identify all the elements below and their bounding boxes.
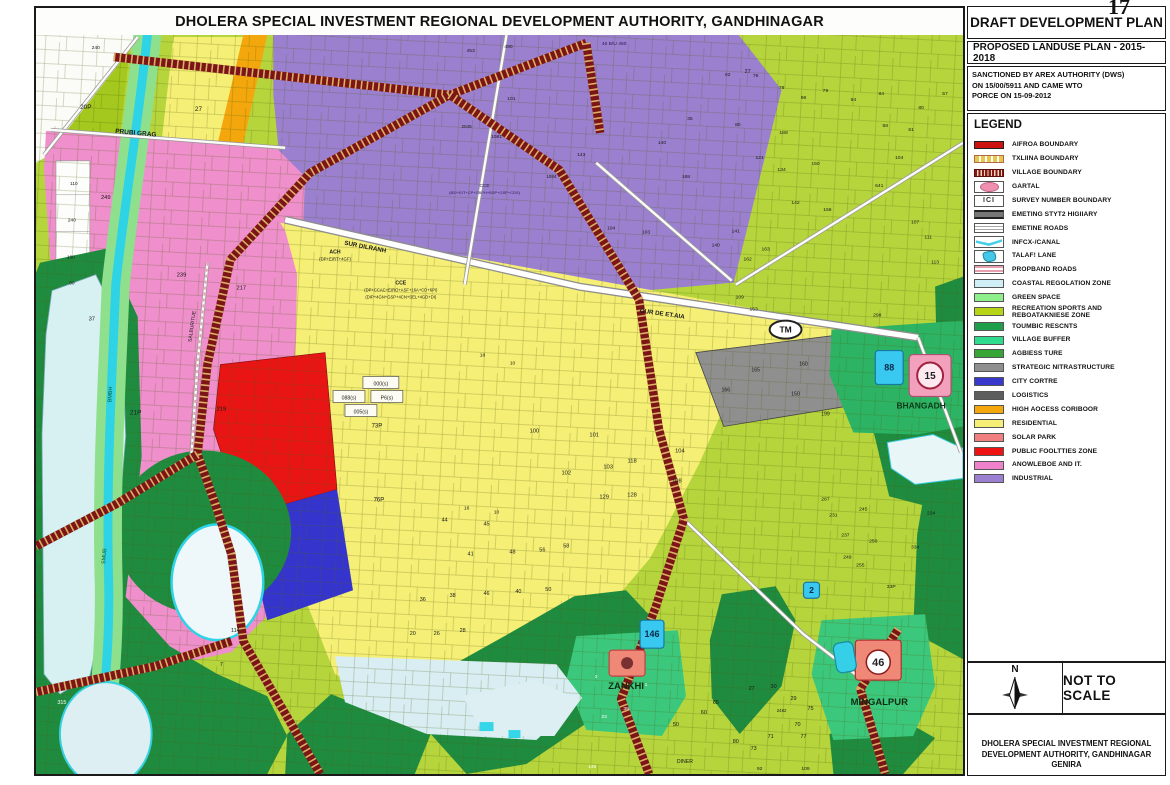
map-label: 50 (673, 722, 679, 728)
map-label: 26 (434, 631, 440, 637)
map-label: 143 (577, 152, 586, 158)
map-label: 00 (69, 281, 75, 287)
north-arrow-icon (998, 675, 1032, 711)
map-label: 315 (57, 700, 66, 706)
map-label: 75 (807, 706, 813, 712)
map-label: 73 (751, 746, 757, 752)
map-label: 245 (859, 506, 868, 512)
canal-bit (508, 730, 520, 738)
map-label: 114 (231, 628, 240, 634)
map-label: ACH (329, 250, 340, 256)
map-label: 162 (744, 257, 753, 263)
map-label: 80 (918, 105, 924, 111)
map-label: 166 (721, 388, 730, 394)
badge-88: 88 (875, 351, 903, 385)
map-label: 84 (879, 91, 885, 97)
map-label: 27 (195, 106, 203, 113)
map-label: 28 (460, 628, 466, 634)
map-label: 61 (908, 127, 914, 133)
map-label: (DP+CCAC+EIRO+ASF+16A+CD+6PI) (364, 288, 438, 293)
credit-line: DHOLERA SPECIAL INVESTMENT REGIONAL (968, 739, 1165, 750)
map-label: 40 (515, 589, 521, 595)
map-label: 249 (101, 195, 111, 201)
map-label: 2 (595, 674, 598, 680)
map-label: CCE (480, 183, 490, 189)
legend-swatch (974, 141, 1004, 149)
map-label: 287 (821, 496, 830, 502)
map-label: 57 (942, 91, 948, 97)
map-label: 249 (843, 554, 852, 560)
credit-line: DEVELOPMENT AUTHORITY, GANDHINAGAR (968, 750, 1165, 761)
map-label: 76 (753, 73, 759, 79)
map-label: 140 (658, 140, 667, 146)
map-label: 000(s) (374, 382, 389, 388)
map-label: 150 (811, 161, 820, 167)
map-label: (DP+EIRT+4GF) (319, 257, 351, 262)
map-label: 29 (791, 696, 797, 702)
map-label: 088(s) (342, 396, 357, 402)
map-label: 30 (771, 684, 777, 690)
canal-bit (480, 722, 494, 731)
legend-label: HIGH AOCESS CORIBOOR (1012, 406, 1098, 413)
legend-item: EMETINE ROADS (974, 221, 1165, 235)
legend-item: TXLIINA BOUNDARY (974, 152, 1165, 166)
badge-15: 15 (909, 355, 951, 397)
map-label: 45 (483, 521, 489, 527)
legend-item: HIGH AOCESS CORIBOOR (974, 403, 1165, 417)
map-label: 16 (464, 505, 470, 511)
map-label: 163 (761, 247, 770, 253)
map-label: 005(s) (354, 409, 369, 415)
map-label: 60 (701, 710, 707, 716)
legend-label: INDUSTRIAL (1012, 475, 1053, 482)
legend-label: VILLAGE BOUNDARY (1012, 169, 1082, 176)
map-label: 334 (911, 544, 920, 550)
legend-item: TALAF! LANE (974, 249, 1165, 263)
map-label: DINER (677, 759, 693, 765)
map-label: 2045 (462, 124, 473, 129)
map-label: 18 (480, 353, 486, 359)
map-label: BMBH (107, 386, 114, 402)
svg-text:46: 46 (872, 657, 884, 669)
legend: LEGEND AIFROA BOUNDARYTXLIINA BOUNDARYVI… (967, 113, 1166, 662)
map-label: 160 (799, 362, 808, 368)
legend-label: INFCX-/CANAL (1012, 239, 1060, 246)
map-label: 10 (494, 509, 500, 515)
legend-label: STRATEGIC NITRASTRUCTURE (1012, 364, 1115, 371)
map-label: 96 (801, 95, 807, 101)
map-label: 298 (873, 313, 882, 319)
map-label: CCE (395, 281, 406, 287)
map-label: 250 (869, 538, 878, 544)
map-label: 453 (466, 48, 475, 54)
map-label: 20 (410, 631, 416, 637)
map-label: 39 (623, 706, 629, 712)
badge-46: 46 (855, 640, 901, 680)
map-label: 103 (603, 464, 613, 470)
credit-line: GENIRA (968, 760, 1165, 771)
map-label: 44 (442, 517, 448, 523)
map-label: 20P (80, 104, 92, 111)
map-label: 23 (601, 714, 607, 720)
map-label: 58 (563, 543, 569, 549)
map-label: 70 (794, 722, 800, 728)
map-label: 33P (887, 584, 897, 590)
legend-item: CITY CORTRE (974, 375, 1165, 389)
map-label: 129 (599, 494, 609, 500)
map-label: 77 (800, 734, 806, 740)
map-label: 234 (927, 510, 936, 516)
sanction-line: PORCE ON 15-09-2012 (972, 91, 1161, 102)
map-label: 38 (450, 593, 456, 599)
legend-label: CITY CORTRE (1012, 378, 1058, 385)
legend-swatch (974, 293, 1004, 302)
map-label: 166 (823, 207, 832, 213)
map-label: 101 (589, 432, 599, 438)
legend-item: RESIDENTIAL (974, 416, 1165, 430)
scale-box: N NOT TO SCALE (967, 662, 1166, 714)
map-label: 80 (733, 739, 739, 745)
map-label: 35 (687, 116, 693, 122)
legend-item: AGBIESS TURE (974, 347, 1165, 361)
map-label: 239 (177, 273, 187, 279)
legend-item: RECREATION SPORTS AND REBOATAKNIESE ZONE (974, 305, 1165, 320)
north-label: N (1011, 665, 1018, 675)
legend-swatch (974, 307, 1004, 316)
map-frame: DHOLERA SPECIAL INVESTMENT REGIONAL DEVE… (34, 6, 965, 776)
map-label: 240 (68, 218, 76, 224)
legend-swatch (974, 265, 1004, 274)
map-label: 62 (725, 72, 731, 78)
map-label: 108 (672, 478, 682, 484)
map-label: 10 (510, 361, 516, 367)
map-label: 153 (750, 307, 759, 313)
map-label: 78 (779, 85, 785, 91)
map-label: 92 (757, 766, 763, 772)
map-label: 110 (70, 181, 78, 187)
legend-item: GREEN SPACE (974, 291, 1165, 305)
map-label: ZANKHI (608, 681, 644, 692)
map-label: 141 (732, 229, 741, 235)
map-label: 231 (829, 512, 838, 518)
map-label: 188 (779, 130, 788, 136)
legend-item: TOUMBIC RESCNTS (974, 319, 1165, 333)
map-label: 58 (882, 123, 888, 129)
map-title: DHOLERA SPECIAL INVESTMENT REGIONAL DEVE… (36, 8, 963, 37)
map-label: 36 (420, 597, 426, 603)
map-label: 2482 (777, 708, 787, 713)
map-label: 113 (931, 260, 939, 266)
legend-swatch: ICI (974, 195, 1004, 207)
map-label: 27 (745, 69, 751, 75)
legend-label: PROPBAND ROADS (1012, 266, 1077, 273)
legend-swatch (974, 279, 1004, 288)
legend-item: AIFROA BOUNDARY (974, 138, 1165, 152)
map-label: 46 B/U 460 (602, 41, 627, 47)
map-label: 219 (217, 406, 227, 412)
credit: DHOLERA SPECIAL INVESTMENT REGIONAL DEVE… (967, 714, 1166, 776)
page-number: 17 (1108, 0, 1130, 20)
legend-label: TOUMBIC RESCNTS (1012, 323, 1078, 330)
plan-subtitle: PROPOSED LANDUSE PLAN - 2015-2018 (967, 41, 1166, 64)
legend-item: COASTAL REGOLATION ZONE (974, 277, 1165, 291)
map-label: 165 (751, 368, 760, 374)
map-label: 1 (645, 682, 648, 688)
map-label: 100 (530, 428, 540, 434)
sanction-line: ON 15/00/5911 AND CAME WTO (972, 81, 1161, 92)
legend-swatch (974, 461, 1004, 470)
legend-item: VILLAGE BUFFER (974, 333, 1165, 347)
legend-swatch (974, 405, 1004, 414)
svg-text:2: 2 (809, 585, 814, 595)
legend-label: COASTAL REGOLATION ZONE (1012, 280, 1111, 287)
legend-label: TALAF! LANE (1012, 252, 1056, 259)
plan-title: DRAFT DEVELOPMENT PLAN (967, 6, 1166, 39)
legend-swatch (974, 391, 1004, 400)
legend-swatch (974, 250, 1004, 263)
legend-label: AGBIESS TURE (1012, 350, 1063, 357)
legend-swatch (974, 169, 1004, 177)
map-label: 79 (823, 88, 829, 94)
map-label: 140 (712, 243, 721, 249)
map-label: 104 (675, 448, 685, 454)
map-label: 109 (801, 766, 810, 772)
pond-blob (172, 524, 264, 640)
legend-item: PROPBAND ROADS (974, 263, 1165, 277)
legend-label: AIFROA BOUNDARY (1012, 141, 1078, 148)
map-canvas: TM4615882146 PRUBI GRAGSUR DILRANHOUR DE… (36, 35, 963, 774)
legend-items: AIFROA BOUNDARYTXLIINA BOUNDARYVILLAGE B… (974, 138, 1165, 486)
map-label: 160 (67, 255, 75, 261)
legend-item: INFCX-/CANAL (974, 235, 1165, 249)
legend-swatch (974, 433, 1004, 442)
legend-label: RESIDENTIAL (1012, 420, 1057, 427)
map-label: MINGALPUR (851, 697, 908, 708)
legend-label: EMETING STYT2 HIGIIARY (1012, 211, 1097, 218)
legend-swatch (974, 419, 1004, 428)
legend-item: LOGISTICS (974, 389, 1165, 403)
map-label: 490 (504, 44, 513, 50)
page: { "page_number": "17", "map": { "title":… (0, 0, 1170, 785)
legend-item: EMETING STYT2 HIGIIARY (974, 207, 1165, 221)
map-label: 103 (642, 230, 651, 236)
map-label: 65 (713, 700, 719, 706)
map-label: 48 (509, 549, 515, 555)
legend-swatch (974, 474, 1004, 483)
legend-label: SOLAR PARK (1012, 434, 1056, 441)
map-label: 46 (483, 591, 489, 597)
map-label: 101 (507, 96, 516, 102)
badge-TM: TM (770, 321, 802, 339)
map-label: 41 (468, 551, 474, 557)
map-label: 21P (130, 409, 142, 416)
legend-label: LOGISTICS (1012, 392, 1048, 399)
map-label: 56 (539, 547, 545, 553)
map-label: BHANGADH (896, 400, 945, 410)
svg-text:TM: TM (779, 325, 791, 335)
legend-label: GREEN SPACE (1012, 294, 1061, 301)
legend-label: VILLAGE BUFFER (1012, 336, 1071, 343)
map-label: 240 (92, 45, 101, 51)
map-label: (DIP+4GN+GSP+4CN+SEL+4GD+DI) (365, 295, 437, 300)
map-label: 109 (736, 295, 745, 301)
map-label: 7 (220, 662, 223, 668)
map-label: 134 (777, 167, 786, 173)
legend-swatch (974, 223, 1004, 233)
legend-swatch (974, 447, 1004, 456)
map-label: 1084 (546, 174, 557, 179)
legend-label: SURVEY NUMBER BOUNDARY (1012, 197, 1112, 204)
legend-item: STRATEGIC NITRASTRUCTURE (974, 361, 1165, 375)
map-label: P6(s) (381, 396, 394, 402)
map-label: 76P (374, 497, 385, 503)
map-label: 168 (682, 174, 691, 180)
legend-label: RECREATION SPORTS AND REBOATAKNIESE ZONE (1012, 305, 1137, 320)
svg-text:88: 88 (884, 363, 894, 373)
legend-label: TXLIINA BOUNDARY (1012, 155, 1079, 162)
map-label: 73P (372, 423, 383, 429)
map-label: 104 (607, 226, 616, 232)
legend-item: GARTAL (974, 180, 1165, 194)
map-label: 71 (768, 734, 774, 740)
map-label: 237 (841, 532, 850, 538)
map-label: 102 (561, 470, 571, 476)
svg-text:15: 15 (925, 371, 937, 382)
scale-note: NOT TO SCALE (1063, 663, 1165, 713)
map-label: 142 (791, 200, 800, 206)
map-label: (BS/+EIT+CP+GBPH+BSP+GSP+CDS) (449, 190, 520, 195)
north-cell: N (968, 663, 1063, 713)
map-label: 128 (627, 492, 637, 498)
map-label: 118 (627, 458, 636, 464)
legend-swatch (974, 377, 1004, 386)
legend-item: INDUSTRIAL (974, 472, 1165, 486)
map-label: 1081 (491, 134, 502, 140)
sanction-note: SANCTIONED BY AREX AUTHORITY (DWS) ON 15… (967, 66, 1166, 111)
svg-text:146: 146 (645, 629, 660, 639)
legend-swatch (974, 236, 1004, 248)
badge-zankhi-marker (609, 650, 645, 676)
map-label: 199 (821, 411, 830, 417)
map-label: 50 (545, 587, 551, 593)
map-label: 641 (875, 183, 884, 189)
map-label: 150 (791, 392, 800, 398)
legend-swatch (974, 363, 1004, 372)
legend-item: PUBLIC FOOLTTIES ZONE (974, 444, 1165, 458)
badge-146: 146 (640, 620, 664, 648)
legend-item: VILLAGE BOUNDARY (974, 166, 1165, 180)
legend-item: ANOWLEBOE AND IT. (974, 458, 1165, 472)
legend-swatch (974, 181, 1004, 193)
badge-2: 2 (804, 582, 820, 598)
map-label: 111 (924, 235, 932, 241)
map-label: 37 (89, 317, 95, 323)
legend-label: GARTAL (1012, 183, 1040, 190)
legend-swatch (974, 210, 1004, 219)
map-label: 255 (856, 562, 865, 568)
legend-item: ICISURVEY NUMBER BOUNDARY (974, 194, 1165, 208)
sanction-line: SANCTIONED BY AREX AUTHORITY (DWS) (972, 70, 1161, 81)
legend-swatch (974, 349, 1004, 358)
map-label: 94 (851, 97, 857, 103)
map-label: 104 (895, 155, 904, 161)
map-label: 80 (735, 122, 741, 128)
legend-swatch (974, 155, 1004, 163)
pond-sw (60, 682, 152, 774)
map-label: 145 (588, 764, 596, 770)
legend-swatch (974, 336, 1004, 345)
map-label: 27 (749, 686, 755, 692)
map-label: 217 (237, 286, 247, 292)
legend-label: EMETINE ROADS (1012, 225, 1068, 232)
legend-item: SOLAR PARK (974, 430, 1165, 444)
legend-label: PUBLIC FOOLTTIES ZONE (1012, 448, 1097, 455)
legend-label: ANOWLEBOE AND IT. (1012, 461, 1082, 468)
map-label: 107 (911, 220, 920, 226)
map-label: 121 (756, 155, 765, 161)
legend-swatch (974, 322, 1004, 331)
legend-header: LEGEND (974, 119, 1165, 131)
